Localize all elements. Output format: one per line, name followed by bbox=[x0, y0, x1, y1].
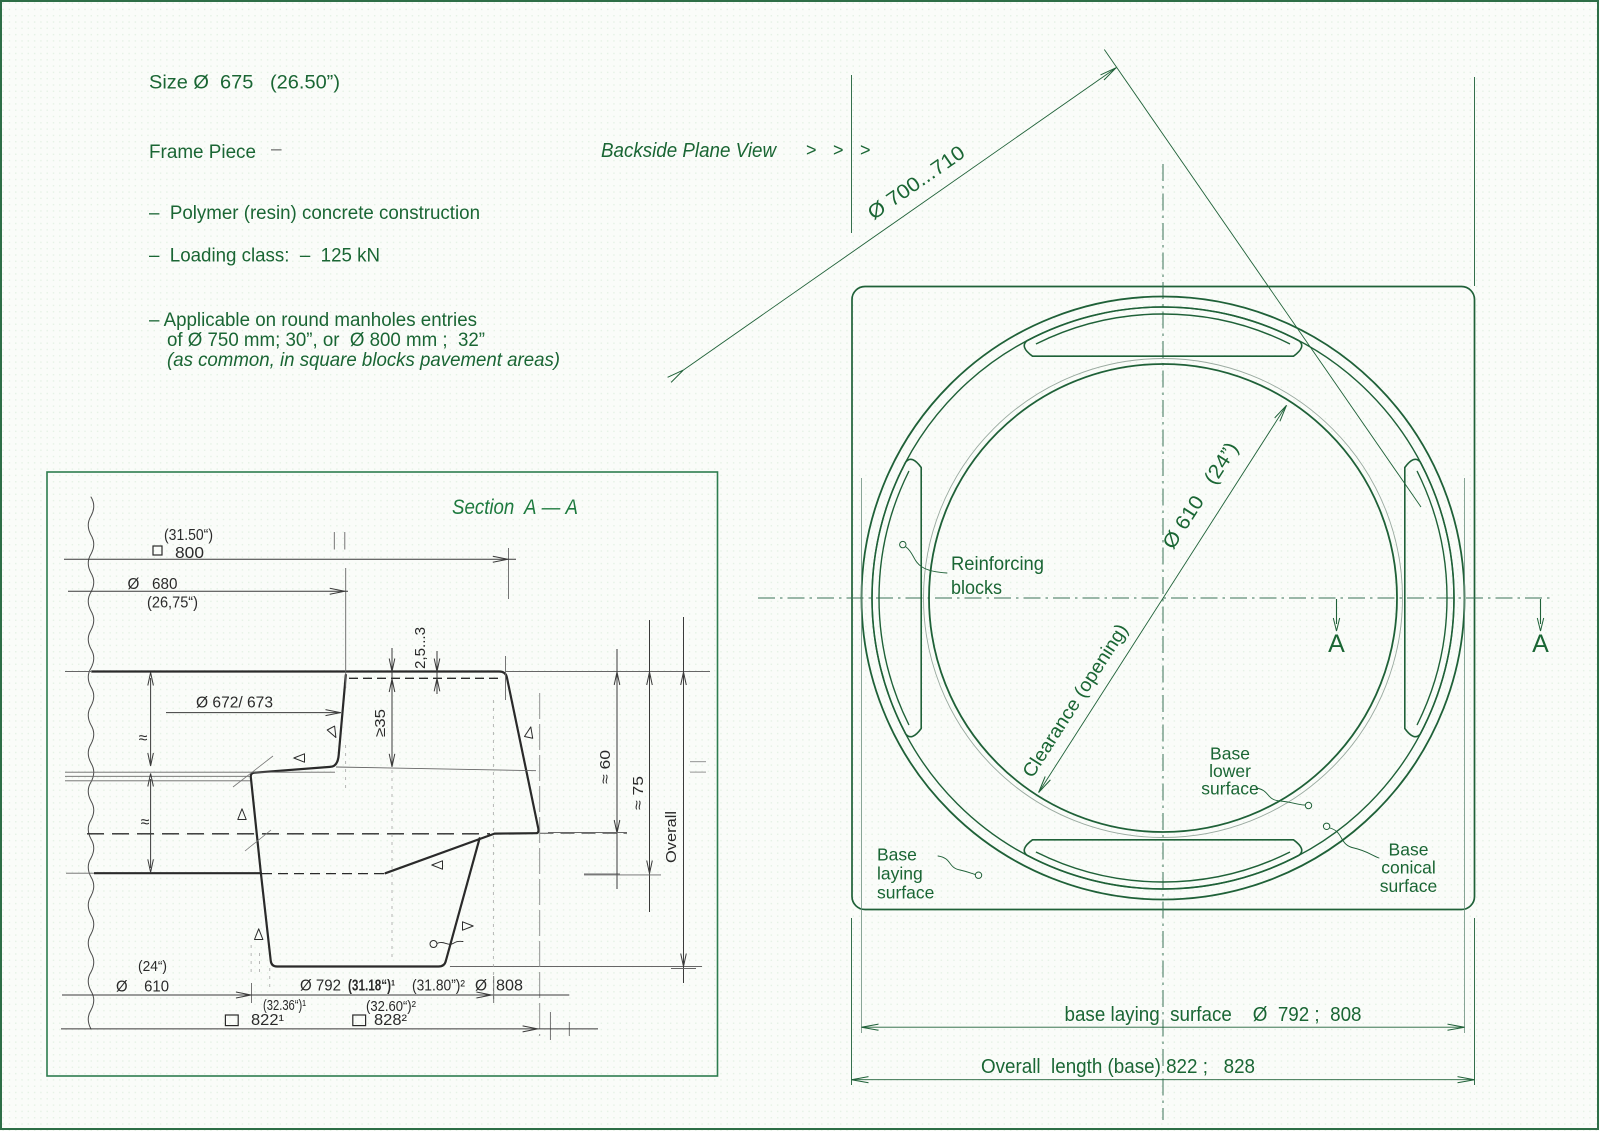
svg-text:Reinforcing: Reinforcing bbox=[951, 554, 1044, 575]
svg-text:Backside Plane View: Backside Plane View bbox=[601, 140, 777, 162]
svg-text:surface: surface bbox=[1380, 876, 1437, 896]
svg-text:822¹: 822¹ bbox=[251, 1012, 284, 1029]
svg-text:≈ 60: ≈ 60 bbox=[597, 750, 614, 784]
svg-text:(31.50“): (31.50“) bbox=[164, 527, 213, 544]
svg-text:– Polymer (resin) concrete co: – Polymer (resin) concrete construction bbox=[149, 203, 480, 224]
svg-text:surface: surface bbox=[877, 883, 934, 903]
svg-text:–: – bbox=[271, 139, 282, 160]
svg-text:Ø 672/ 673: Ø 672/ 673 bbox=[196, 695, 273, 712]
svg-text:828²: 828² bbox=[374, 1012, 407, 1029]
svg-text:conical: conical bbox=[1381, 858, 1435, 878]
svg-text:>: > bbox=[833, 140, 844, 160]
svg-text:Ø: Ø bbox=[475, 978, 487, 995]
svg-text:(31.80”)²: (31.80”)² bbox=[412, 978, 465, 995]
svg-text:Section A — A: Section A — A bbox=[452, 496, 578, 519]
svg-text:Overall: Overall bbox=[663, 811, 680, 863]
svg-text:>: > bbox=[806, 140, 817, 160]
svg-text:(26,75“): (26,75“) bbox=[147, 595, 198, 612]
svg-text:A: A bbox=[1328, 630, 1345, 658]
svg-text:– Applicable on round manholes: – Applicable on round manholes entries bbox=[149, 310, 477, 331]
svg-text:(as common, in square blocks p: (as common, in square blocks pavement ar… bbox=[167, 350, 560, 371]
svg-text:Overall length (base) 822 ;: Overall length (base) 822 ; 828 bbox=[981, 1055, 1255, 1078]
svg-text:>: > bbox=[860, 140, 871, 160]
svg-text:(24“): (24“) bbox=[138, 959, 167, 975]
svg-text:A: A bbox=[1532, 630, 1549, 658]
svg-text:808: 808 bbox=[496, 978, 523, 995]
svg-text:laying: laying bbox=[877, 864, 923, 884]
svg-text:Size Ø 675 (26.50”): Size Ø 675 (26.50”) bbox=[149, 73, 340, 94]
svg-text:≈ 75: ≈ 75 bbox=[630, 776, 647, 810]
svg-text:Ø 610: Ø 610 bbox=[116, 979, 169, 996]
svg-text:Ø 610 (24”): Ø 610 (24”) bbox=[1159, 438, 1243, 553]
svg-text:Ø 792: Ø 792 bbox=[300, 978, 341, 995]
svg-text:base laying surface Ø 792: base laying surface Ø 792 ; 808 bbox=[1065, 1003, 1362, 1026]
svg-text:Clearance (opening): Clearance (opening) bbox=[1019, 620, 1133, 781]
svg-text:– Loading class: – 125 kN: – Loading class: – 125 kN bbox=[149, 246, 380, 267]
svg-text:blocks: blocks bbox=[951, 578, 1002, 599]
svg-text:800: 800 bbox=[175, 545, 204, 562]
svg-text:of Ø 750 mm; 30”, or Ø 800 mm: of Ø 750 mm; 30”, or Ø 800 mm ; 32” bbox=[167, 330, 485, 351]
svg-text:Base: Base bbox=[877, 845, 917, 865]
svg-text:2,5...3: 2,5...3 bbox=[412, 627, 429, 669]
svg-text:Ø 680: Ø 680 bbox=[128, 576, 178, 593]
svg-text:Ø 700...710: Ø 700...710 bbox=[864, 142, 969, 225]
svg-text:≈: ≈ bbox=[141, 814, 150, 831]
svg-text:Base: Base bbox=[1389, 840, 1429, 860]
svg-text:(31.18“)¹: (31.18“)¹ bbox=[348, 978, 395, 995]
svg-text:surface: surface bbox=[1201, 779, 1258, 799]
svg-text:Frame Piece: Frame Piece bbox=[149, 142, 256, 163]
svg-text:≈: ≈ bbox=[139, 730, 148, 747]
svg-text:≥35: ≥35 bbox=[372, 709, 389, 737]
